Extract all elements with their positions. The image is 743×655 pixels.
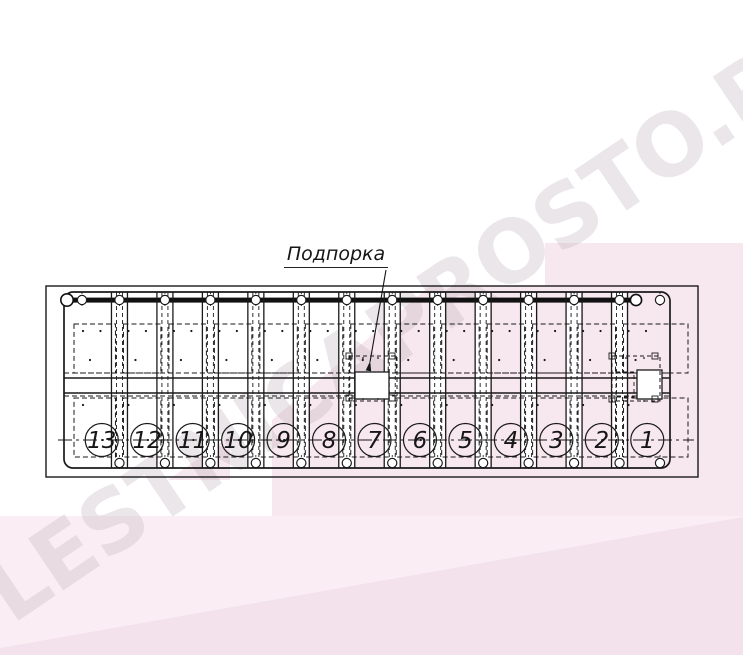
- step-number-12: 12: [133, 428, 162, 454]
- riser-strip: [475, 293, 490, 467]
- step-number-6: 6: [413, 428, 428, 454]
- step-number-3: 3: [549, 428, 564, 454]
- riser-strip: [293, 293, 308, 467]
- drawing-canvas: LESTNICAPROSTO.RU 13121110987654321: [0, 0, 743, 655]
- riser-strip: [612, 293, 627, 467]
- fastener-top-right: [655, 292, 664, 308]
- riser-strip: [339, 293, 354, 467]
- step-number-9: 9: [276, 428, 291, 454]
- step-number-4: 4: [504, 428, 519, 454]
- step-number-10: 10: [223, 428, 252, 454]
- step-number-11: 11: [178, 428, 207, 454]
- riser-strip: [430, 293, 445, 467]
- fastener-top-left: [77, 292, 86, 308]
- step-number-1: 1: [640, 428, 655, 454]
- riser-strip: [566, 293, 581, 467]
- riser-strip: [521, 293, 536, 467]
- step-number-7: 7: [367, 428, 382, 454]
- tread-outline-upper: [74, 324, 115, 373]
- step-number-13: 13: [87, 428, 116, 454]
- step-number-2: 2: [594, 428, 609, 454]
- step-number-8: 8: [322, 428, 337, 454]
- rod-right-end: [630, 294, 641, 305]
- support-label: Подпорка: [284, 244, 388, 268]
- tread-outline-upper: [624, 324, 688, 373]
- step-number-5: 5: [458, 428, 473, 454]
- rod-left-end: [61, 294, 73, 306]
- staircase-plan: 13121110987654321: [0, 0, 743, 655]
